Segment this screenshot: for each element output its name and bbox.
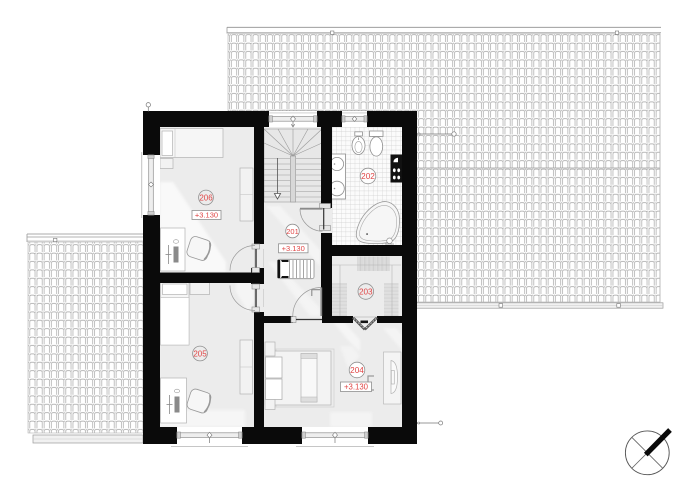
svg-text:204: 204 — [350, 366, 364, 375]
svg-text:203: 203 — [359, 288, 373, 297]
svg-text:205: 205 — [193, 350, 207, 359]
svg-text:+3.130: +3.130 — [282, 244, 305, 253]
svg-text:201: 201 — [286, 227, 299, 236]
svg-text:+3.130: +3.130 — [344, 382, 369, 391]
svg-text:206: 206 — [199, 194, 213, 203]
svg-text:+3.130: +3.130 — [195, 211, 218, 220]
svg-text:202: 202 — [361, 172, 375, 181]
